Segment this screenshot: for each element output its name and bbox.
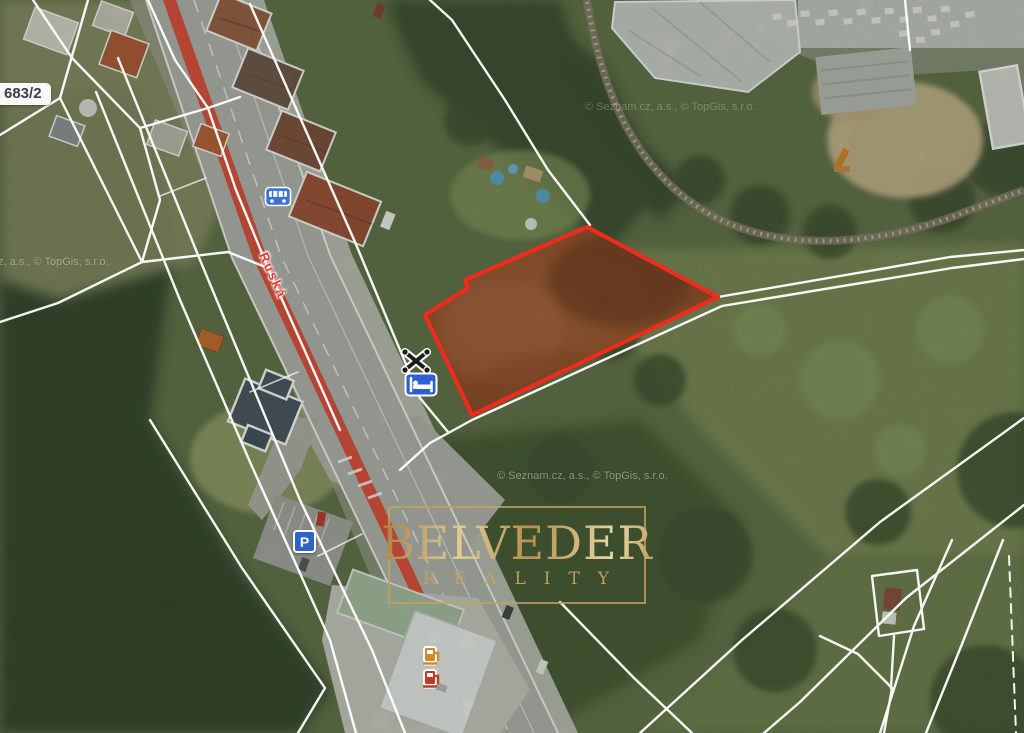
parking-icon[interactable]: P [293,530,316,553]
bus-stop-icon[interactable] [264,186,292,207]
fuel-icon-red[interactable] [421,668,443,690]
map-canvas[interactable]: 683/2 Ruská P [0,0,1024,733]
satellite-map [0,0,1024,733]
provider-copyright: © Seznam.cz, a.s., © TopGis, s.r.o. [0,256,109,268]
parking-letter: P [300,535,309,549]
provider-copyright: © Seznam.cz, a.s., © TopGis, s.r.o. [585,101,756,113]
brand-watermark: BELVEDER REALITY [388,506,646,604]
parcel-number-label: 683/2 [0,83,51,105]
brand-title: BELVEDER [381,521,653,565]
fuel-icon-amber[interactable] [421,645,443,667]
provider-copyright: © Seznam.cz, a.s., © TopGis, s.r.o. [497,470,668,482]
hotel-icon[interactable] [404,372,438,397]
brand-subtitle: REALITY [423,569,627,589]
